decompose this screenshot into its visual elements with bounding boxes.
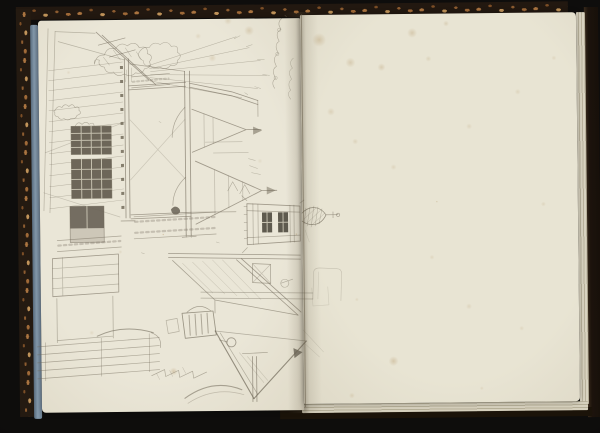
sketchbook xyxy=(26,9,592,419)
handwritten-inscription xyxy=(272,15,294,99)
photo-of-open-sketchbook xyxy=(0,0,600,433)
pencil-sketch-of-buildings-and-church-spire xyxy=(0,0,600,433)
